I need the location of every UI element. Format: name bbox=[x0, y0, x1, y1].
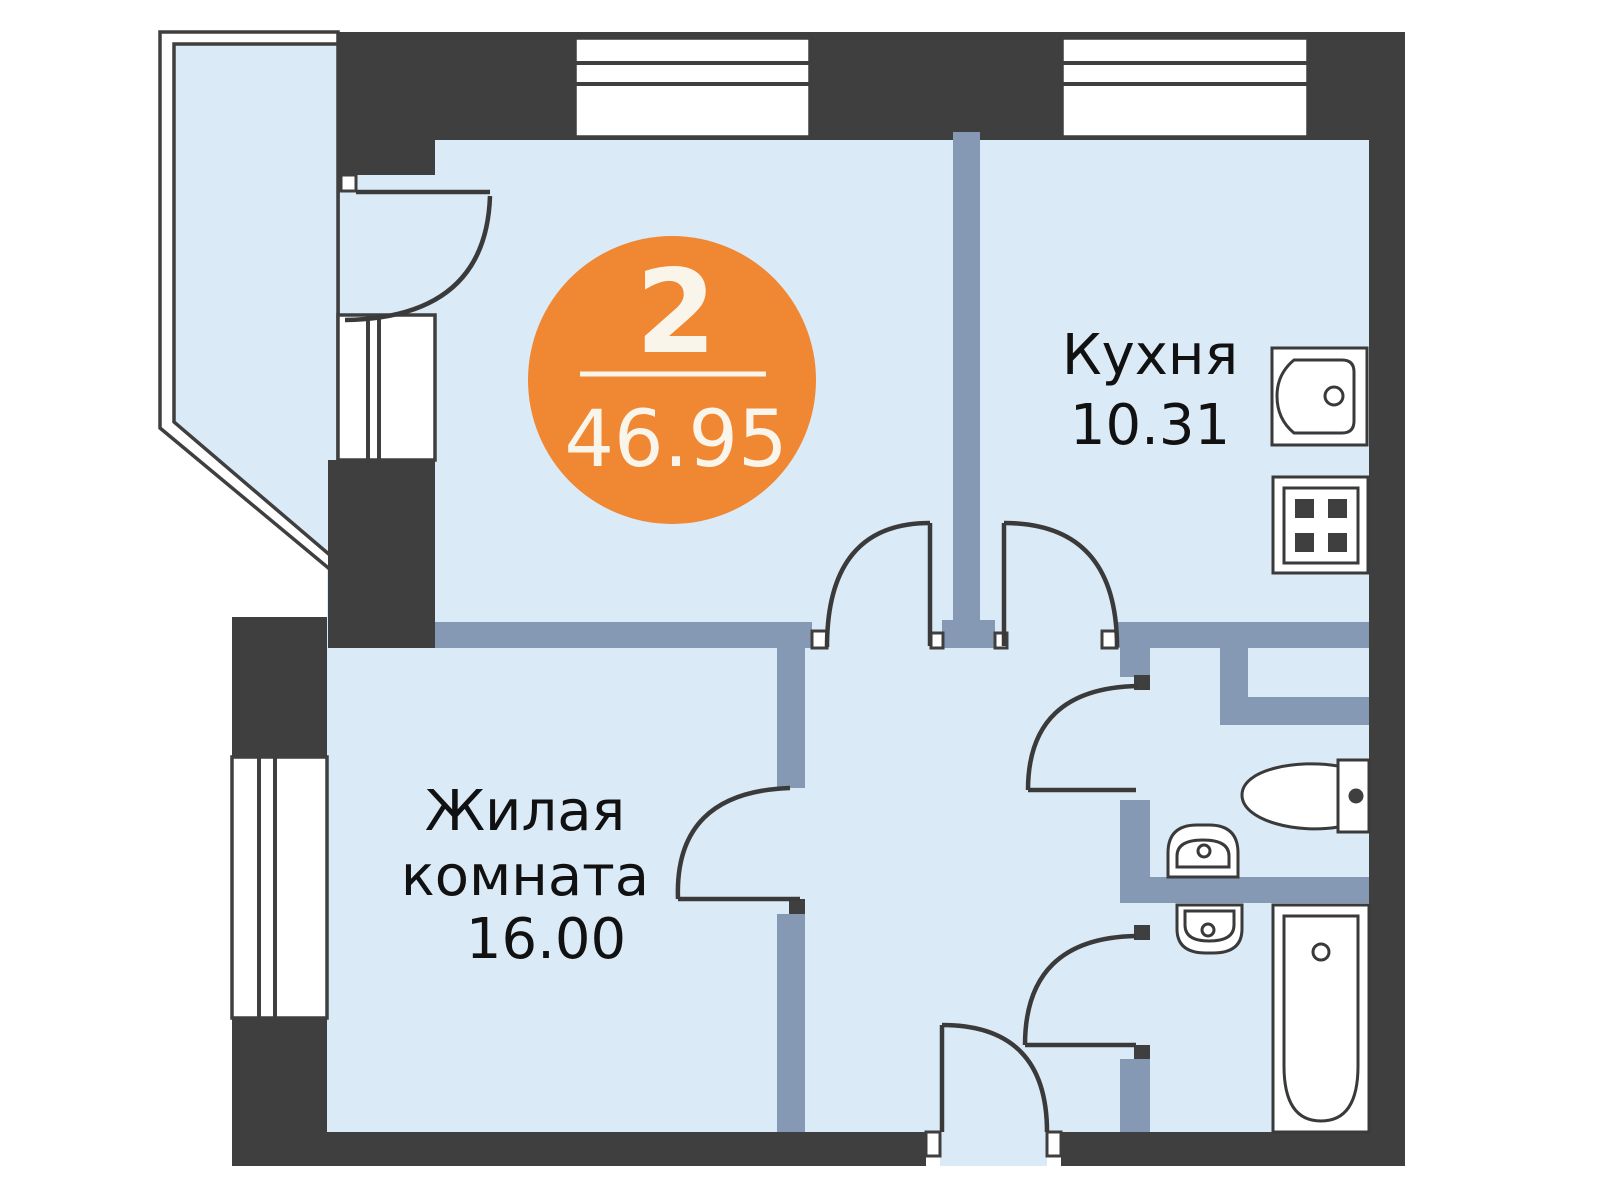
bathtub-icon bbox=[1273, 905, 1369, 1132]
partition-bath-west bbox=[1120, 1059, 1150, 1132]
partition-duct-horizontal bbox=[1248, 697, 1369, 725]
badge-rooms-count: 2 bbox=[636, 245, 717, 380]
wall-bottom-left bbox=[232, 1132, 926, 1166]
washbasin-icon bbox=[1177, 905, 1242, 953]
partition-living-hall-upper bbox=[777, 648, 805, 788]
window-kitchen bbox=[1062, 38, 1308, 137]
window-living-room bbox=[232, 757, 327, 1018]
area-badge: 2 46.95 bbox=[528, 236, 816, 524]
door-jamb-notch-dark bbox=[1134, 1045, 1150, 1059]
entrance-jamb-left bbox=[926, 1132, 940, 1156]
kitchen-sink-icon bbox=[1272, 348, 1367, 445]
washbasin-icon bbox=[1168, 825, 1238, 877]
door-jamb-notch bbox=[341, 175, 356, 191]
partition-duct-vertical bbox=[1220, 648, 1248, 725]
partition-living-hall-lower bbox=[777, 914, 805, 1132]
window-top-left bbox=[575, 38, 810, 137]
wall-under-french-window bbox=[328, 460, 435, 648]
partition-kitchen-divider bbox=[953, 132, 980, 622]
door-jamb-notch bbox=[812, 631, 827, 648]
partition-wc-door-stub bbox=[1120, 648, 1150, 677]
door-jamb-notch bbox=[931, 633, 943, 648]
floor-plan: Кухня 10.31 Жилая комната 16.00 2 46.95 bbox=[0, 0, 1600, 1200]
door-jamb-notch-dark bbox=[1134, 925, 1150, 940]
french-window-balcony bbox=[338, 315, 435, 460]
living-room-label-line2: комната bbox=[401, 844, 649, 909]
partition-divider-foot bbox=[942, 620, 995, 648]
badge-total-area: 46.95 bbox=[564, 395, 787, 485]
wall-right bbox=[1369, 32, 1405, 1166]
entrance-jamb-right bbox=[1047, 1132, 1061, 1156]
kitchen-label: Кухня bbox=[1062, 323, 1238, 388]
living-room-label-line1: Жилая bbox=[425, 779, 626, 844]
wall-pillar-balcony bbox=[338, 32, 435, 175]
partition-hall-wc bbox=[1117, 622, 1369, 648]
partition-room-top bbox=[435, 622, 812, 648]
floor-plan-page: Кухня 10.31 Жилая комната 16.00 2 46.95 bbox=[0, 0, 1600, 1200]
partition-wc-bath bbox=[1120, 877, 1369, 903]
partition-wc-west bbox=[1120, 800, 1150, 877]
kitchen-area: 10.31 bbox=[1070, 393, 1230, 458]
wall-bottom-right bbox=[1061, 1132, 1405, 1166]
living-room-area: 16.00 bbox=[466, 907, 626, 972]
stove-icon bbox=[1273, 477, 1368, 573]
wall-left-upper bbox=[232, 617, 327, 757]
entrance-threshold bbox=[940, 1132, 1047, 1166]
wall-left-lower bbox=[232, 1018, 327, 1132]
